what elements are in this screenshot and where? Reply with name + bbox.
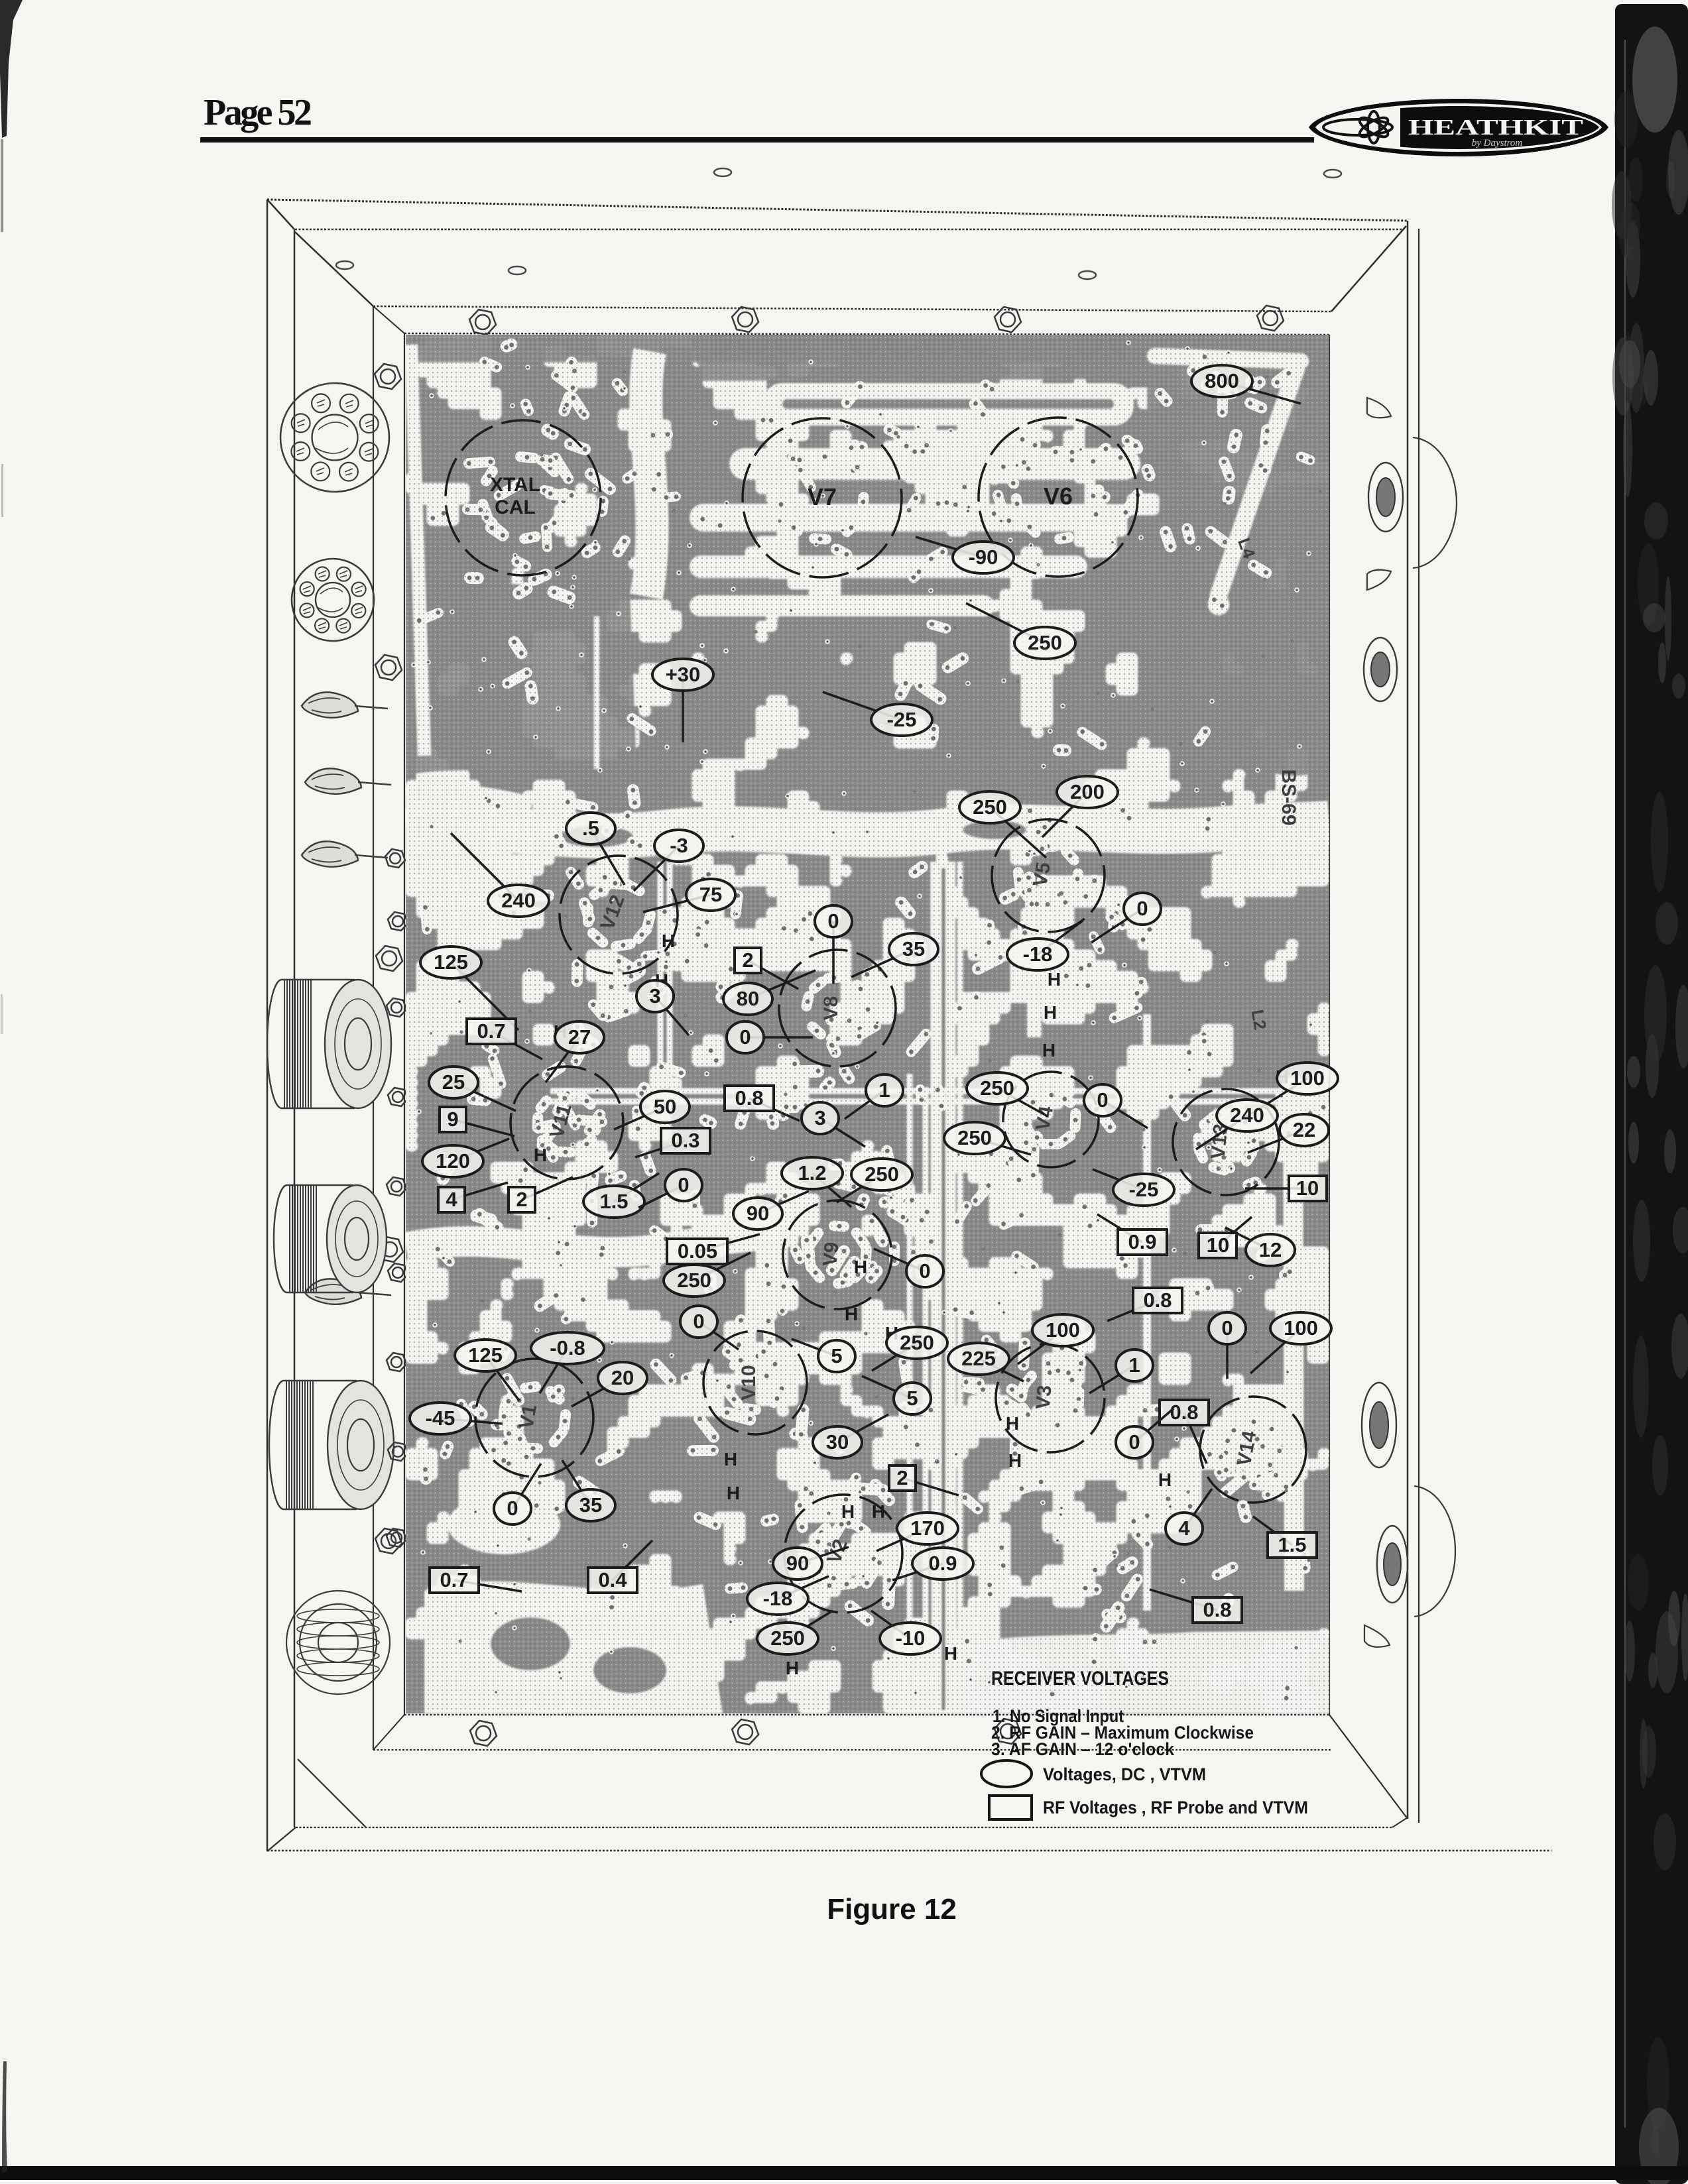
svg-text:V10: V10 — [738, 1365, 760, 1400]
svg-text:0: 0 — [827, 909, 839, 933]
svg-text:0: 0 — [693, 1310, 704, 1333]
svg-text:H: H — [1008, 1450, 1022, 1471]
svg-text:V6: V6 — [1044, 483, 1073, 510]
svg-text:125: 125 — [434, 950, 468, 974]
svg-text:12: 12 — [1259, 1238, 1282, 1261]
svg-text:25: 25 — [442, 1070, 465, 1094]
svg-text:120: 120 — [436, 1149, 470, 1173]
svg-text:1.5: 1.5 — [599, 1190, 628, 1213]
svg-text:H: H — [534, 1145, 547, 1165]
svg-text:-18: -18 — [763, 1587, 793, 1610]
svg-text:250: 250 — [980, 1076, 1014, 1100]
svg-text:90: 90 — [747, 1202, 769, 1225]
svg-text:H: H — [1048, 969, 1061, 990]
svg-text:0: 0 — [1097, 1088, 1108, 1112]
svg-text:0.8: 0.8 — [735, 1086, 763, 1110]
svg-text:1: 1 — [878, 1078, 890, 1102]
svg-text:Page 52: Page 52 — [204, 92, 312, 133]
svg-text:75: 75 — [699, 883, 722, 906]
svg-text:20: 20 — [611, 1366, 634, 1389]
svg-text:3: 3 — [649, 984, 660, 1007]
svg-text:1.5: 1.5 — [1278, 1533, 1306, 1556]
svg-text:10: 10 — [1296, 1177, 1319, 1200]
svg-text:H: H — [662, 931, 675, 951]
svg-text:5: 5 — [906, 1387, 918, 1410]
svg-text:2: 2 — [516, 1188, 527, 1211]
svg-text:4: 4 — [446, 1188, 457, 1211]
svg-text:0: 0 — [1128, 1430, 1140, 1454]
svg-text:30: 30 — [826, 1430, 849, 1454]
svg-text:H: H — [724, 1449, 737, 1469]
svg-text:35: 35 — [579, 1493, 602, 1517]
svg-text:-90: -90 — [969, 546, 998, 569]
svg-text:2: 2 — [742, 948, 753, 972]
svg-text:10: 10 — [1207, 1234, 1229, 1257]
svg-text:240: 240 — [501, 889, 536, 912]
svg-text:RF Voltages , RF Probe and VTV: RF Voltages , RF Probe and VTVM — [1043, 1798, 1308, 1817]
svg-text:0.7: 0.7 — [477, 1019, 505, 1043]
svg-text:250: 250 — [865, 1163, 899, 1186]
svg-text:250: 250 — [973, 795, 1007, 819]
svg-text:100: 100 — [1046, 1318, 1080, 1342]
svg-text:-45: -45 — [426, 1407, 455, 1430]
svg-text:H: H — [854, 1257, 867, 1277]
svg-text:H: H — [727, 1483, 740, 1503]
svg-text:V7: V7 — [808, 483, 837, 510]
svg-text:27: 27 — [568, 1025, 591, 1049]
svg-text:0.3: 0.3 — [671, 1129, 699, 1152]
svg-text:BS-69: BS-69 — [1278, 769, 1299, 825]
svg-text:V3: V3 — [1032, 1384, 1055, 1410]
svg-text:200: 200 — [1070, 780, 1105, 803]
svg-text:by Daystrom: by Daystrom — [1472, 138, 1523, 148]
svg-text:5: 5 — [831, 1344, 842, 1367]
svg-text:H: H — [1158, 1469, 1172, 1490]
svg-text:-0.8: -0.8 — [550, 1336, 585, 1359]
svg-text:V5: V5 — [1029, 860, 1055, 888]
svg-text:0.9: 0.9 — [928, 1552, 957, 1575]
svg-text:250: 250 — [1028, 631, 1062, 654]
svg-text:170: 170 — [910, 1517, 945, 1540]
svg-text:-10: -10 — [896, 1627, 926, 1650]
svg-text:0: 0 — [739, 1025, 751, 1049]
svg-text:0: 0 — [507, 1497, 518, 1520]
svg-text:0.8: 0.8 — [1203, 1598, 1231, 1621]
svg-text:H: H — [1006, 1413, 1019, 1434]
svg-text:1: 1 — [1128, 1353, 1140, 1377]
svg-text:H: H — [1044, 1002, 1057, 1023]
svg-text:3: 3 — [814, 1106, 825, 1129]
svg-text:125: 125 — [468, 1344, 503, 1367]
svg-text:-3: -3 — [670, 834, 688, 857]
svg-text:H: H — [786, 1658, 799, 1678]
svg-text:CAL: CAL — [495, 496, 536, 518]
svg-text:1.2: 1.2 — [798, 1161, 826, 1184]
svg-text:H: H — [872, 1501, 885, 1522]
svg-text:250: 250 — [957, 1126, 992, 1149]
svg-text:0.4: 0.4 — [598, 1568, 627, 1591]
svg-text:H: H — [1042, 1040, 1055, 1061]
svg-text:V9: V9 — [819, 1241, 843, 1267]
svg-text:.5: .5 — [582, 817, 599, 840]
svg-text:0.9: 0.9 — [1128, 1230, 1156, 1253]
svg-text:250: 250 — [677, 1269, 711, 1292]
svg-text:100: 100 — [1290, 1066, 1325, 1090]
svg-text:4: 4 — [1178, 1517, 1190, 1540]
svg-text:Figure 12: Figure 12 — [827, 1893, 957, 1925]
svg-text:0: 0 — [678, 1173, 689, 1196]
svg-text:0.05: 0.05 — [678, 1239, 717, 1263]
svg-text:250: 250 — [900, 1331, 934, 1354]
svg-text:H: H — [841, 1501, 855, 1522]
svg-text:22: 22 — [1293, 1118, 1315, 1141]
svg-text:H: H — [845, 1304, 858, 1324]
svg-text:Voltages, DC , VTVM: Voltages, DC , VTVM — [1043, 1764, 1206, 1784]
svg-text:0.8: 0.8 — [1170, 1401, 1198, 1424]
svg-text:0.7: 0.7 — [440, 1568, 468, 1591]
svg-text:0: 0 — [919, 1259, 930, 1283]
svg-text:L2: L2 — [1247, 1008, 1270, 1031]
svg-text:50: 50 — [654, 1095, 676, 1118]
svg-text:H: H — [944, 1643, 957, 1664]
svg-text:35: 35 — [902, 937, 925, 960]
svg-text:-25: -25 — [887, 708, 917, 731]
svg-text:80: 80 — [737, 987, 759, 1010]
svg-text:-18: -18 — [1023, 943, 1053, 966]
svg-text:-25: -25 — [1129, 1178, 1159, 1201]
svg-text:RECEIVER VOLTAGES: RECEIVER VOLTAGES — [991, 1668, 1169, 1690]
svg-text:2: 2 — [896, 1466, 908, 1489]
svg-text:800: 800 — [1205, 369, 1239, 392]
svg-text:V8: V8 — [820, 996, 842, 1021]
svg-text:+30: +30 — [666, 663, 701, 686]
svg-text:250: 250 — [770, 1627, 805, 1650]
svg-text:9: 9 — [447, 1108, 458, 1131]
svg-text:0: 0 — [1136, 897, 1148, 920]
svg-text:240: 240 — [1230, 1104, 1264, 1127]
svg-text:0.8: 0.8 — [1143, 1289, 1172, 1312]
svg-text:3. AF GAIN – 12 o'clock: 3. AF GAIN – 12 o'clock — [991, 1739, 1175, 1759]
svg-text:HEATHKIT: HEATHKIT — [1408, 115, 1583, 140]
svg-text:V1: V1 — [515, 1403, 541, 1430]
svg-text:100: 100 — [1284, 1316, 1318, 1340]
svg-text:XTAL: XTAL — [490, 474, 540, 496]
svg-text:225: 225 — [961, 1347, 996, 1370]
svg-text:0: 0 — [1221, 1316, 1233, 1340]
svg-text:90: 90 — [786, 1552, 809, 1575]
